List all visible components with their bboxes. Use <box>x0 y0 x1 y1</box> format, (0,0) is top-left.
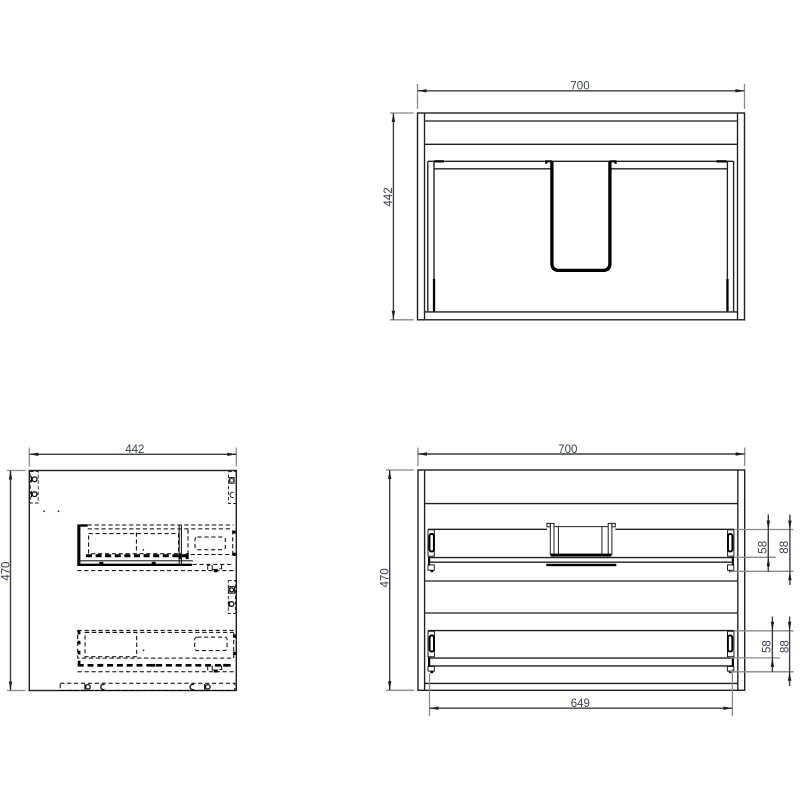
svg-text:442: 442 <box>383 187 395 206</box>
svg-text:649: 649 <box>571 698 590 710</box>
svg-text:58: 58 <box>762 640 774 653</box>
svg-text:700: 700 <box>558 444 577 456</box>
svg-text:58: 58 <box>757 541 769 554</box>
svg-text:88: 88 <box>779 640 791 653</box>
svg-text:88: 88 <box>779 541 791 554</box>
svg-text:470: 470 <box>380 568 392 587</box>
svg-text:700: 700 <box>570 81 589 93</box>
svg-text:470: 470 <box>0 562 12 581</box>
svg-text:442: 442 <box>125 444 144 456</box>
